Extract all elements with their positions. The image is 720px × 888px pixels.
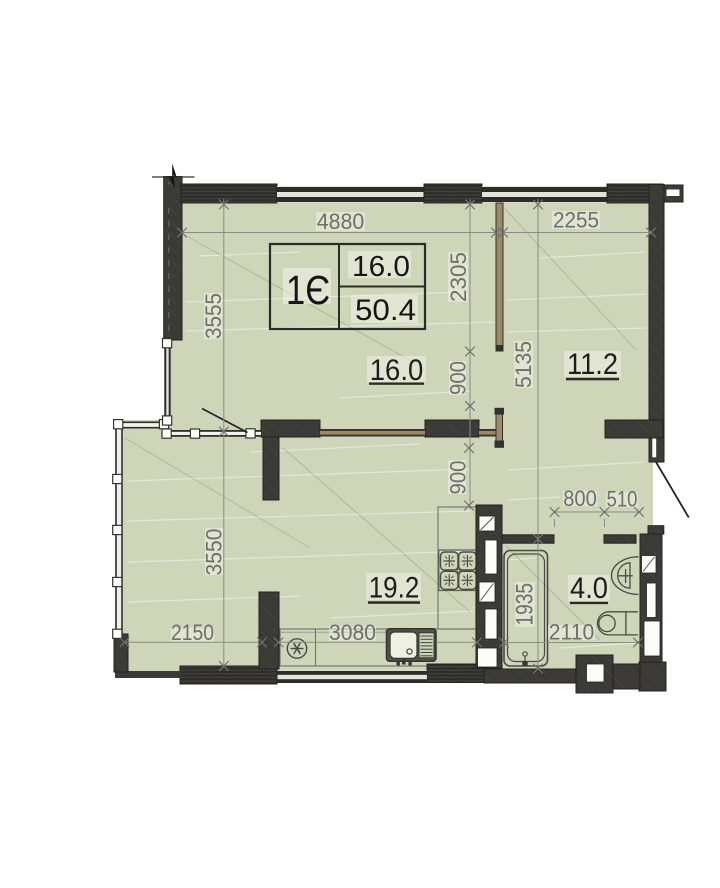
svg-text:2305: 2305 (446, 252, 471, 302)
svg-text:2255: 2255 (553, 208, 599, 233)
svg-text:1Є: 1Є (286, 267, 330, 313)
svg-text:3080: 3080 (329, 620, 376, 645)
svg-text:2110: 2110 (549, 620, 595, 645)
svg-text:4880: 4880 (317, 209, 365, 234)
svg-text:3555: 3555 (201, 293, 226, 339)
svg-text:19.2: 19.2 (369, 572, 420, 605)
svg-text:3550: 3550 (202, 529, 227, 576)
svg-text:510: 510 (607, 487, 638, 512)
svg-text:16.0: 16.0 (352, 251, 410, 283)
svg-text:4.0: 4.0 (570, 572, 608, 605)
svg-text:900: 900 (446, 361, 471, 395)
svg-text:1935: 1935 (512, 583, 539, 626)
svg-text:50.4: 50.4 (355, 294, 416, 327)
svg-text:16.0: 16.0 (370, 354, 424, 387)
svg-text:900: 900 (445, 461, 470, 495)
svg-text:5135: 5135 (511, 341, 536, 388)
svg-text:11.2: 11.2 (567, 348, 618, 381)
svg-text:2150: 2150 (171, 620, 214, 645)
svg-text:800: 800 (563, 486, 597, 511)
